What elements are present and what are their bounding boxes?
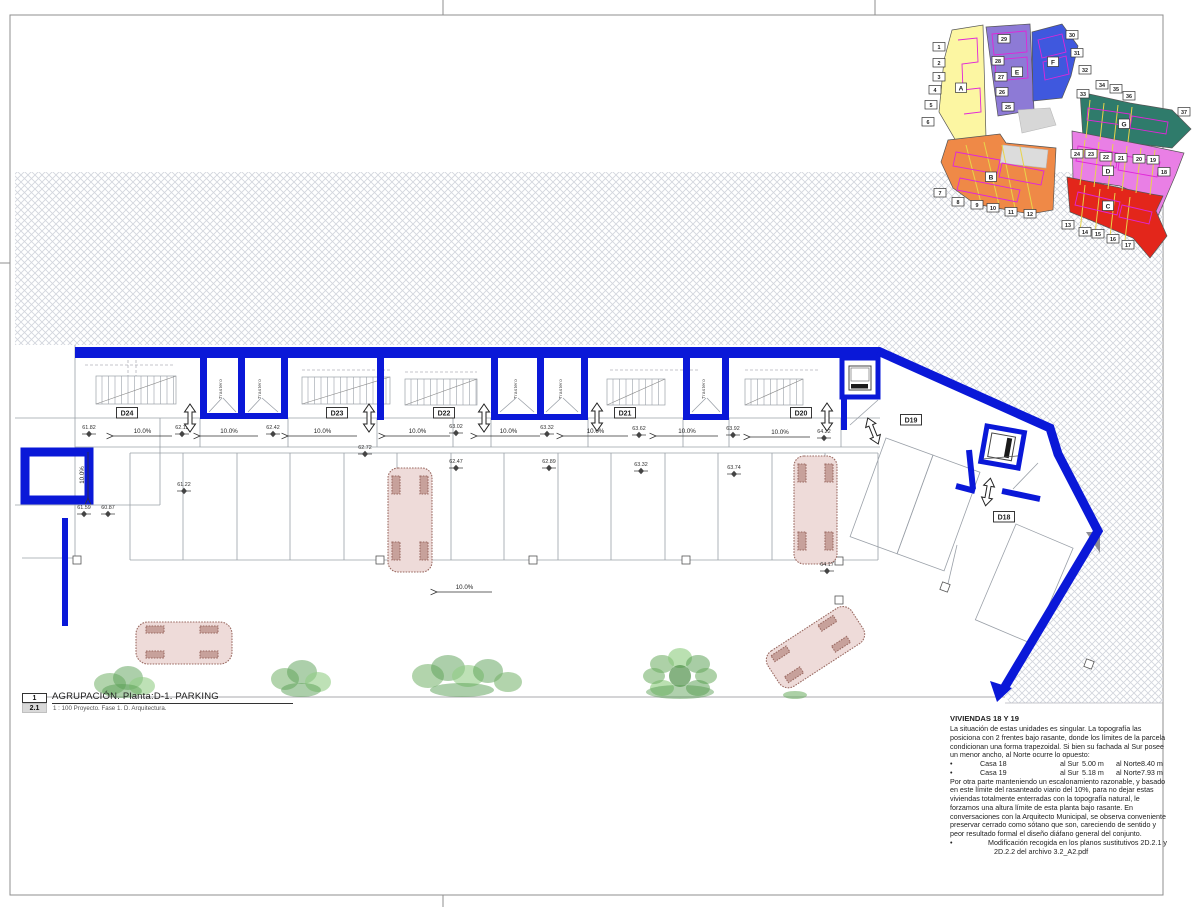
keymap-house-number: 24: [1071, 150, 1083, 159]
stair-flight: [96, 376, 176, 404]
svg-text:F: F: [1051, 60, 1055, 67]
elevator-2: [981, 426, 1025, 468]
keymap-zone-letter-c: C: [1103, 201, 1114, 211]
unit-label-d24: D24: [117, 408, 138, 419]
keymap-house-number: 15: [1092, 230, 1104, 239]
stair-flight: [302, 377, 390, 404]
elevator-1: [842, 358, 878, 397]
spot-elevation: 63.32: [540, 425, 554, 437]
notes-line: La situación de estas unidades es singul…: [950, 725, 1168, 734]
svg-text:62.47: 62.47: [449, 459, 463, 465]
svg-text:D20: D20: [795, 411, 808, 418]
svg-text:5: 5: [930, 103, 933, 109]
keymap-house-number: 30: [1066, 31, 1078, 40]
svg-text:16: 16: [1110, 237, 1116, 243]
keymap-house-number: 14: [1079, 228, 1091, 237]
keymap-house-number: 3: [933, 73, 945, 82]
wall-top-band: [75, 347, 880, 358]
keymap-zone-letter-f: F: [1048, 57, 1059, 67]
slope-arrow: 10.0%: [200, 428, 258, 436]
notes-line: en este límite del rasanteado viario del…: [950, 786, 1168, 795]
spot-elevation: 63.32: [634, 462, 648, 474]
svg-text:8: 8: [957, 200, 960, 206]
trastero-label: Trastero: [257, 379, 263, 399]
keymap-house-number: 10: [987, 204, 999, 213]
notes-line: Por otra parte manteniendo un escalonami…: [950, 778, 1168, 787]
svg-text:24: 24: [1074, 152, 1080, 158]
door-arrow: [863, 416, 884, 446]
svg-text:63.02: 63.02: [449, 424, 463, 430]
keymap-house-number: 27: [995, 73, 1007, 82]
svg-text:61.59: 61.59: [77, 505, 91, 511]
keymap-house-number: 32: [1079, 66, 1091, 75]
svg-text:63.62: 63.62: [632, 426, 646, 432]
unit-label-d21: D21: [615, 408, 636, 419]
svg-text:30: 30: [1069, 33, 1075, 39]
notes-line: posiciona con 2 frentes bajo rasante, do…: [950, 734, 1168, 743]
svg-text:10.0%: 10.0%: [678, 428, 696, 435]
spot-elevation: 61.59: [77, 505, 91, 517]
door-arrow: [980, 477, 996, 506]
svg-text:63.32: 63.32: [634, 462, 648, 468]
svg-text:63.74: 63.74: [727, 465, 741, 471]
svg-text:63.32: 63.32: [540, 425, 554, 431]
keymap-house-number: 34: [1096, 81, 1108, 90]
svg-text:33: 33: [1080, 92, 1086, 98]
svg-text:D18: D18: [998, 515, 1011, 522]
svg-text:10.0%: 10.0%: [134, 428, 152, 435]
door-arrows: [185, 403, 996, 507]
svg-text:27: 27: [998, 75, 1004, 81]
svg-text:10.0%: 10.0%: [500, 428, 518, 435]
tree: [783, 691, 807, 699]
spot-elevation: 63.92: [726, 426, 740, 438]
spot-elevation: 61.82: [82, 425, 96, 437]
notes-line: conversaciones con la Arquitecto Municip…: [950, 813, 1168, 822]
keymap-house-number: 19: [1147, 156, 1159, 165]
svg-text:15: 15: [1095, 232, 1101, 238]
spot-elevations: 61.8262.1262.4263.0263.3263.6263.9264.22…: [77, 424, 834, 574]
svg-text:36: 36: [1126, 94, 1132, 100]
keymap-house-number: 25: [1002, 103, 1014, 112]
spot-elevation: 60.87: [101, 505, 115, 517]
svg-text:32: 32: [1082, 68, 1088, 74]
svg-text:11: 11: [1008, 210, 1014, 216]
svg-text:10.0%: 10.0%: [314, 428, 332, 435]
slope-arrow: 10.0%: [656, 428, 718, 436]
svg-text:10.0%: 10.0%: [771, 429, 789, 436]
keymap-house-number: 33: [1077, 90, 1089, 99]
keymap-house-number: 16: [1107, 235, 1119, 244]
car: [794, 456, 837, 564]
keymap-zone-letter-b: B: [986, 172, 997, 182]
svg-text:D19: D19: [905, 418, 918, 425]
svg-text:61.22: 61.22: [177, 482, 191, 488]
notes-line: viviendas totalmente enterradas con la t…: [950, 795, 1168, 804]
keymap-zone-letter-e: E: [1012, 67, 1023, 77]
svg-text:D21: D21: [619, 411, 632, 418]
svg-text:25: 25: [1005, 105, 1011, 111]
svg-text:1: 1: [938, 45, 941, 51]
keymap-house-number: 36: [1123, 92, 1135, 101]
keymap-house-number: 35: [1110, 85, 1122, 94]
svg-text:7: 7: [939, 191, 942, 197]
unit-label-d19: D19: [901, 415, 922, 426]
svg-text:D: D: [1106, 169, 1111, 176]
keymap-house-number: 9: [971, 201, 983, 210]
svg-text:12: 12: [1027, 212, 1033, 218]
trastero-label: Trastero: [701, 379, 707, 399]
keymap-house-number: 6: [922, 118, 934, 127]
svg-text:23: 23: [1088, 152, 1094, 158]
slope-arrow: 10.0%: [385, 428, 450, 436]
svg-text:37: 37: [1181, 110, 1187, 116]
tree: [412, 655, 522, 697]
keymap-house-number: 4: [929, 86, 941, 95]
svg-text:C: C: [1106, 204, 1111, 211]
svg-text:4: 4: [934, 88, 937, 94]
car: [388, 468, 432, 572]
svg-text:64.17: 64.17: [820, 562, 834, 568]
svg-text:29: 29: [1001, 37, 1007, 43]
spot-elevation: 63.62: [632, 426, 646, 438]
svg-text:18: 18: [1161, 170, 1167, 176]
tree: [271, 660, 331, 697]
spot-elevation: 61.22: [177, 482, 191, 494]
spot-elevation: 63.02: [449, 424, 463, 436]
svg-text:D23: D23: [331, 411, 344, 418]
keymap-house-number: 2: [933, 59, 945, 68]
notes-line: peor resultado formal el diseño diáfano …: [950, 830, 1168, 839]
keymap-house-number: 22: [1100, 153, 1112, 162]
svg-text:19: 19: [1150, 158, 1156, 164]
keymap-house-number: 28: [992, 57, 1004, 66]
casa-dimension-row: •Casa 18al Sur5.00 mal Norte8.40 m: [950, 760, 1168, 769]
tree: [643, 648, 717, 699]
svg-text:28: 28: [995, 59, 1001, 65]
svg-text:13: 13: [1065, 223, 1071, 229]
wall-bar: [62, 518, 68, 626]
trastero-label: Trastero: [558, 379, 564, 399]
car: [136, 622, 232, 664]
unit-label-d20: D20: [791, 408, 812, 419]
keymap-house-number: 5: [925, 101, 937, 110]
svg-text:26: 26: [999, 90, 1005, 96]
spot-elevation: 62.72: [358, 445, 372, 457]
svg-text:60.87: 60.87: [101, 505, 115, 511]
svg-text:17: 17: [1125, 243, 1131, 249]
svg-text:22: 22: [1103, 155, 1109, 161]
svg-text:G: G: [1121, 122, 1126, 129]
notes-bullet: •Modificación recogida en los planos sus…: [950, 839, 1168, 857]
spot-elevation: 64.17: [820, 562, 834, 574]
keymap-house-number: 20: [1133, 155, 1145, 164]
keymap-zone-letter-a: A: [956, 83, 967, 93]
keymap-house-number: 31: [1071, 49, 1083, 58]
unit-label-d18: D18: [994, 512, 1015, 523]
door-arrow: [592, 403, 603, 431]
svg-text:2: 2: [938, 61, 941, 67]
trastero-label: Trastero: [218, 379, 224, 399]
casa-dimension-row: •Casa 19al Sur5.18 mal Norte7.93 m: [950, 769, 1168, 778]
notes-line: preservar cerrado como sótano que son, c…: [950, 821, 1168, 830]
keymap-house-number: 11: [1005, 208, 1017, 217]
svg-text:61.82: 61.82: [82, 425, 96, 431]
spot-elevation: 63.74: [727, 465, 741, 477]
keymap-house-number: 29: [998, 35, 1010, 44]
svg-text:10.0%: 10.0%: [220, 428, 238, 435]
svg-text:10.0%: 10.0%: [456, 584, 474, 591]
keymap-house-number: 1: [933, 43, 945, 52]
keymap-zone-letter-g: G: [1119, 119, 1130, 129]
keymap-house-number: 26: [996, 88, 1008, 97]
spot-elevation: 62.42: [266, 425, 280, 437]
parked-cars: [136, 456, 869, 692]
svg-text:10: 10: [990, 206, 996, 212]
slope-arrow: 10.0%: [113, 428, 172, 436]
svg-text:64.22: 64.22: [817, 429, 831, 435]
keymap-house-number: 17: [1122, 241, 1134, 250]
svg-text:3: 3: [938, 75, 941, 81]
drawing-sheet: AEFGDBC123456789101112131415161718192021…: [0, 0, 1200, 907]
notes-block: VIVIENDAS 18 Y 19 La situación de estas …: [950, 714, 1168, 856]
svg-text:D22: D22: [438, 411, 451, 418]
svg-text:62.72: 62.72: [358, 445, 372, 451]
door-arrow: [822, 403, 833, 431]
svg-text:E: E: [1015, 70, 1020, 77]
svg-text:20: 20: [1136, 157, 1142, 163]
keymap-house-number: 18: [1158, 168, 1170, 177]
keymap-house-number: 37: [1178, 108, 1190, 117]
slope-arrow: 10.0%: [288, 428, 357, 436]
stair-flight: [607, 379, 665, 405]
svg-text:63.92: 63.92: [726, 426, 740, 432]
keymap-house-number: 8: [952, 198, 964, 207]
spot-elevation: 62.89: [542, 459, 556, 471]
svg-text:10.0%: 10.0%: [409, 428, 427, 435]
svg-text:A: A: [959, 86, 964, 93]
svg-text:31: 31: [1074, 51, 1080, 57]
unit-label-d23: D23: [327, 408, 348, 419]
keymap-house-number: 7: [934, 189, 946, 198]
keymap-house-number: 12: [1024, 210, 1036, 219]
notes-line: un menor ancho, al Norte ocurre lo opues…: [950, 751, 1168, 760]
tree: [94, 666, 155, 698]
notes-line: condicionan una forma trapezoidal. Si bi…: [950, 743, 1168, 752]
svg-text:9: 9: [976, 203, 979, 209]
svg-text:6: 6: [927, 120, 930, 126]
slope-arrow: 10.0%: [437, 584, 492, 592]
svg-text:14: 14: [1082, 230, 1088, 236]
keymap-zone-letter-d: D: [1103, 166, 1114, 176]
notes-line: forzamos una altura límite de esta plant…: [950, 804, 1168, 813]
spot-elevation: 64.22: [817, 429, 831, 441]
svg-text:34: 34: [1099, 83, 1105, 89]
unit-label-d22: D22: [434, 408, 455, 419]
svg-text:B: B: [989, 175, 994, 182]
svg-text:10.0%: 10.0%: [79, 466, 86, 484]
svg-text:21: 21: [1118, 156, 1124, 162]
notes-heading: VIVIENDAS 18 Y 19: [950, 714, 1168, 723]
svg-text:62.89: 62.89: [542, 459, 556, 465]
unit-labels: D24D23D22D21D20D19D18: [117, 408, 1015, 523]
svg-text:62.42: 62.42: [266, 425, 280, 431]
stair-flight: [405, 379, 477, 405]
stair-flight: [745, 379, 803, 405]
car: [762, 602, 869, 692]
slope-arrow: 10.0%: [750, 429, 810, 437]
trastero-label: Trastero: [513, 379, 519, 399]
svg-text:35: 35: [1113, 87, 1119, 93]
keymap-house-number: 21: [1115, 154, 1127, 163]
svg-text:D24: D24: [121, 411, 134, 418]
keymap-house-number: 13: [1062, 221, 1074, 230]
keymap-house-number: 23: [1085, 150, 1097, 159]
